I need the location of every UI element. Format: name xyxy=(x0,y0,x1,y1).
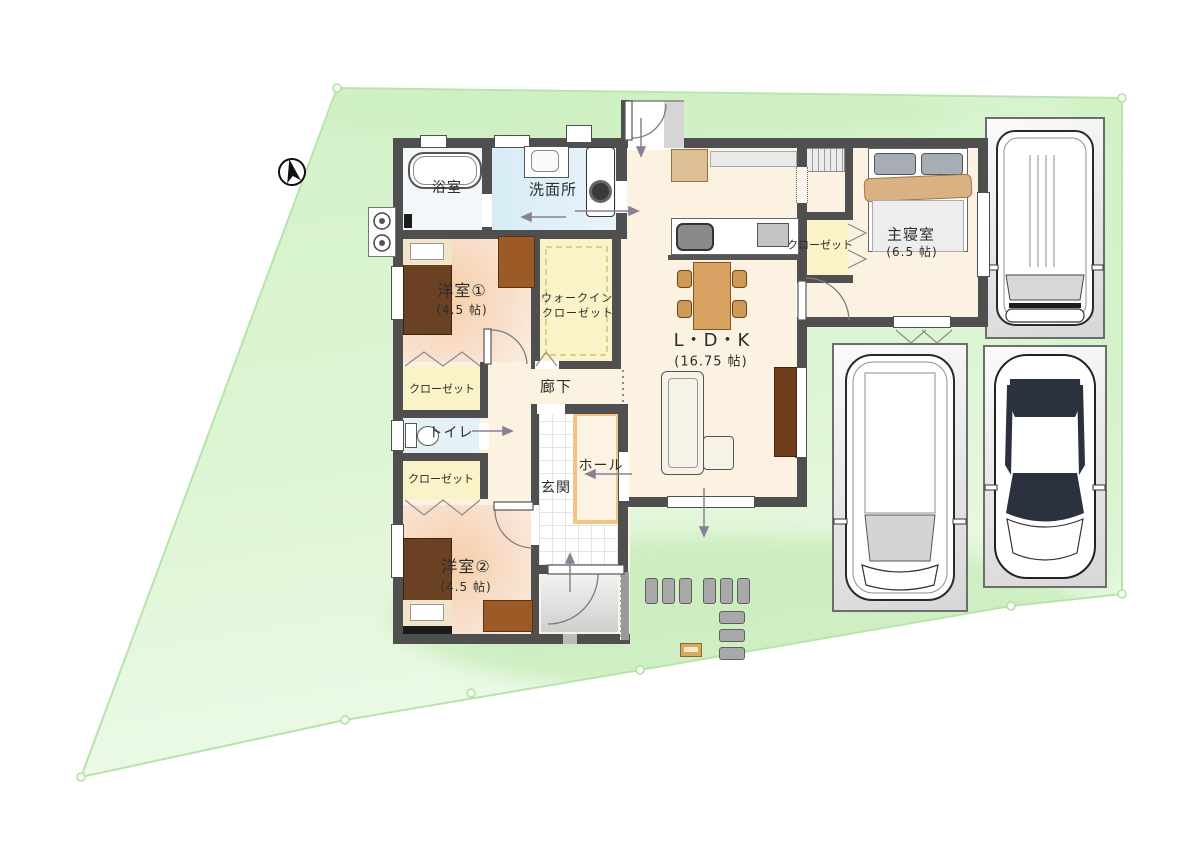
label-toilet: トイレ xyxy=(429,426,474,440)
label-corridor: 廊下 xyxy=(540,380,572,395)
label-west2-size: (4.5 帖) xyxy=(440,581,491,593)
hall-corridor-opening xyxy=(537,404,565,414)
label-west1: 洋室① xyxy=(437,283,486,299)
stepping-stone xyxy=(720,578,733,604)
label-west2: 洋室② xyxy=(441,559,490,575)
bath-window xyxy=(420,135,447,148)
wall-toilet-north xyxy=(393,410,488,418)
desk-west2 xyxy=(483,600,533,632)
west2-door-opening xyxy=(531,505,539,545)
dining-table xyxy=(693,262,731,330)
toilet-tank xyxy=(405,423,417,448)
chair xyxy=(677,270,692,288)
wall-wic-east xyxy=(612,239,621,369)
label-master-closet: クローゼット xyxy=(787,240,853,251)
stepping-stone xyxy=(662,578,675,604)
kitchen-sink xyxy=(676,223,714,251)
wall-top-right xyxy=(682,138,988,148)
wall-south xyxy=(393,634,630,644)
sink-basin xyxy=(531,150,559,172)
label-ldk-size: (16.75 帖) xyxy=(674,356,748,369)
counter-front-edge xyxy=(668,255,799,260)
chair xyxy=(677,300,692,318)
label-hall: ホール xyxy=(579,459,624,473)
label-entrance: 玄関 xyxy=(541,481,571,495)
porch-step-post xyxy=(563,634,577,644)
stepping-stone xyxy=(679,578,692,604)
refrigerator xyxy=(671,149,708,182)
toilet-window xyxy=(391,420,404,451)
master-pillow-left xyxy=(874,153,916,175)
garden-bench-slat xyxy=(684,647,698,652)
desk-west1 xyxy=(498,236,535,288)
sedan-icon xyxy=(985,355,1105,578)
rear-entry-step xyxy=(664,102,684,148)
stepping-stone xyxy=(719,629,745,642)
ldk-window-south xyxy=(667,496,755,508)
wic-opening xyxy=(535,361,559,369)
entrance-porch xyxy=(541,572,618,632)
minivan-icon xyxy=(834,355,966,600)
washing-machine-drum xyxy=(589,180,612,203)
bed-west1-pillow xyxy=(410,243,444,260)
label-master-bedroom: 主寝室 xyxy=(887,228,935,243)
label-washroom: 洗面所 xyxy=(529,183,577,198)
ldk-shelf-niche xyxy=(805,148,845,172)
floor-plan-scene: 浴室 洗面所 洋室① (4.5 帖) ウォークイン クローゼット クローゼット … xyxy=(0,0,1200,868)
label-ldk: L・D・K xyxy=(674,332,751,350)
stepping-stone xyxy=(719,647,745,660)
ottoman xyxy=(703,436,734,470)
label-closet2: クローゼット xyxy=(408,474,474,485)
chair xyxy=(732,300,747,318)
wall-master-closet-bottom xyxy=(797,275,853,283)
sofa-cushion xyxy=(668,378,698,468)
wall-closet2-east xyxy=(480,453,488,499)
master-door-opening xyxy=(796,283,807,317)
bed-west2-pillow xyxy=(410,604,444,621)
stepping-stone xyxy=(703,578,716,604)
van-icon xyxy=(987,131,1103,325)
stepping-stone xyxy=(645,578,658,604)
label-west1-size: (4.5 帖) xyxy=(436,304,487,316)
utility-meter-box xyxy=(368,207,396,257)
master-pillow-right xyxy=(921,153,963,175)
shower-fixture xyxy=(404,214,412,228)
pantry-opening xyxy=(796,167,808,203)
master-blanket xyxy=(864,174,973,203)
toilet-door-opening xyxy=(479,423,489,449)
master-window-south xyxy=(893,316,951,328)
chair xyxy=(732,270,747,288)
wall-alcove xyxy=(621,100,628,148)
wall-porch-stub xyxy=(531,565,550,574)
label-wic-line2: クローゼット xyxy=(542,308,614,319)
label-closet1: クローゼット xyxy=(409,384,475,395)
tv-board xyxy=(774,367,797,457)
stepping-stone xyxy=(719,611,745,624)
stepping-stone xyxy=(737,578,750,604)
kitchen-upper-cabinet xyxy=(710,151,797,167)
wall-porch-east xyxy=(620,572,629,640)
wall-toilet-south xyxy=(393,453,488,461)
label-master-size: (6.5 帖) xyxy=(886,246,937,258)
bath-sliding-door xyxy=(482,194,492,227)
stove xyxy=(757,223,789,247)
wall-master-closet-top xyxy=(797,212,853,220)
master-window-east xyxy=(977,192,990,277)
wall-master-west xyxy=(845,146,853,212)
water-heater-unit xyxy=(566,125,592,143)
washroom-ldk-sliding-door xyxy=(616,181,627,213)
bed-west2-base xyxy=(403,626,452,634)
label-bath: 浴室 xyxy=(432,181,462,195)
label-wic-line1: ウォークイン xyxy=(541,293,613,304)
